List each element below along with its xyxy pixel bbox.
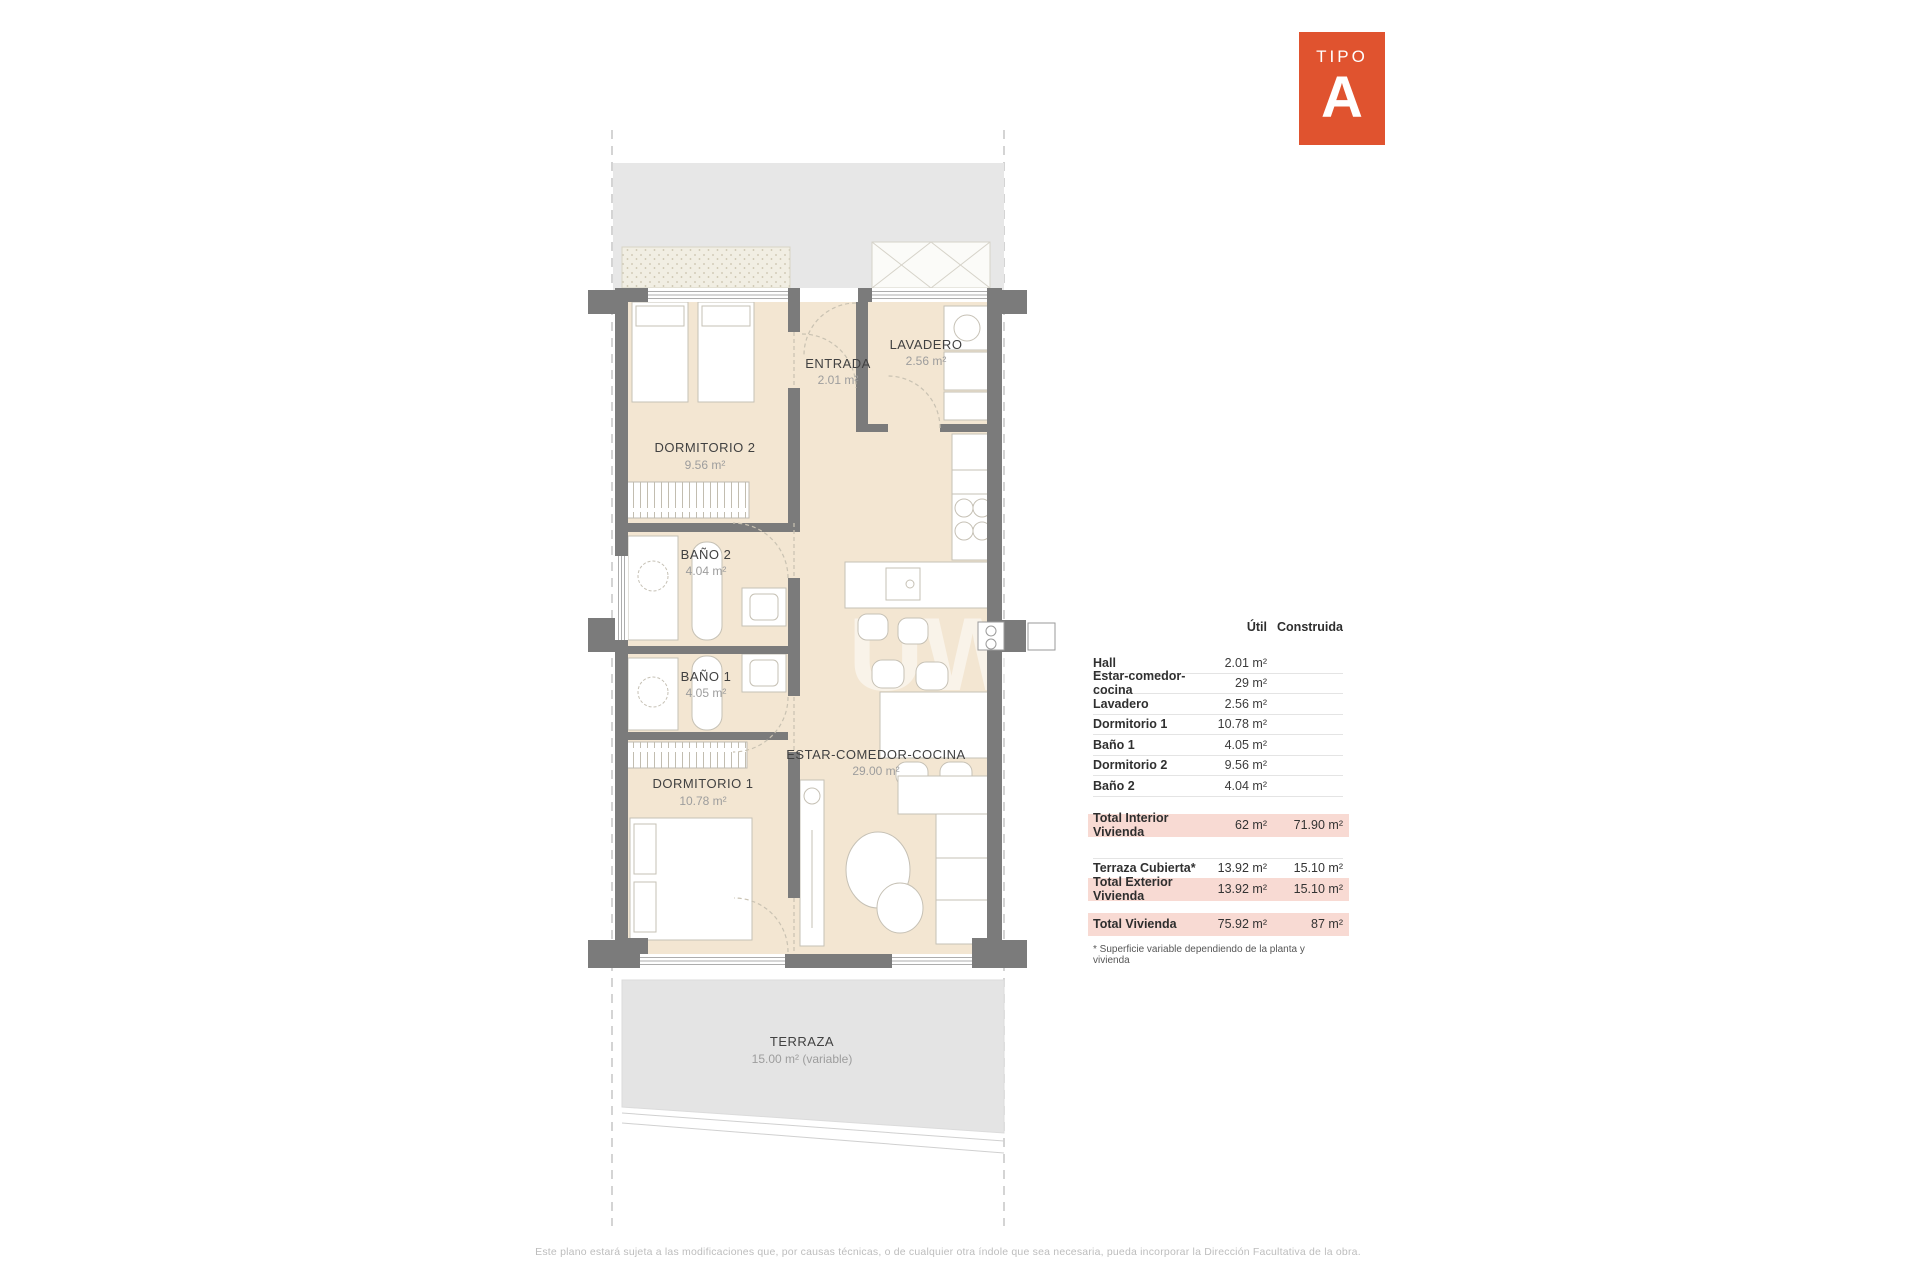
table-row: Baño 2 4.04 m² [1093, 776, 1343, 797]
table-header: Útil Construida [1093, 620, 1343, 640]
area-entrada: 2.01 m² [818, 373, 859, 387]
label-bano1: BAÑO 1 [681, 669, 732, 684]
total-vivienda-row: Total Vivienda 75.92 m² 87 m² [1088, 913, 1349, 936]
label-dormitorio2: DORMITORIO 2 [654, 440, 755, 455]
drying-rack [872, 242, 990, 288]
area-terraza: 15.00 m² (variable) [752, 1052, 853, 1066]
total-exterior-row: Total Exterior Vivienda 13.92 m² 15.10 m… [1088, 878, 1349, 901]
label-terraza: TERRAZA [770, 1034, 834, 1049]
table-row: Dormitorio 1 10.78 m² [1093, 715, 1343, 736]
header-construida: Construida [1267, 620, 1343, 640]
areas-table: Útil Construida Hall 2.01 m² Estar-comed… [1093, 620, 1343, 966]
patio-stipple-area [622, 247, 790, 288]
table-row: Baño 1 4.05 m² [1093, 735, 1343, 756]
table-row: Dormitorio 2 9.56 m² [1093, 756, 1343, 777]
area-lavadero: 2.56 m² [906, 354, 947, 368]
label-entrada: ENTRADA [805, 356, 871, 371]
table-footnote: * Superficie variable dependiendo de la … [1093, 944, 1343, 966]
total-interior-row: Total Interior Vivienda 62 m² 71.90 m² [1088, 814, 1349, 837]
header-util: Útil [1203, 620, 1267, 640]
footer-disclaimer: Este plano estará sujeta a las modificac… [518, 1246, 1378, 1258]
area-bano2: 4.04 m² [686, 564, 727, 578]
label-estar: ESTAR-COMEDOR-COCINA [786, 747, 965, 762]
area-estar: 29.00 m² [852, 764, 899, 778]
type-badge-label: TIPO [1299, 47, 1385, 67]
label-lavadero: LAVADERO [890, 337, 963, 352]
area-dormitorio1: 10.78 m² [679, 794, 726, 808]
table-row: Lavadero 2.56 m² [1093, 694, 1343, 715]
type-badge: TIPO A [1299, 32, 1385, 145]
label-bano2: BAÑO 2 [681, 547, 732, 562]
area-bano1: 4.05 m² [686, 686, 727, 700]
area-dormitorio2: 9.56 m² [685, 458, 726, 472]
label-dormitorio1: DORMITORIO 1 [652, 776, 753, 791]
floor-plan: UW [0, 0, 1920, 1280]
type-badge-letter: A [1299, 69, 1385, 127]
table-row: Estar-comedor-cocina 29 m² [1093, 674, 1343, 695]
